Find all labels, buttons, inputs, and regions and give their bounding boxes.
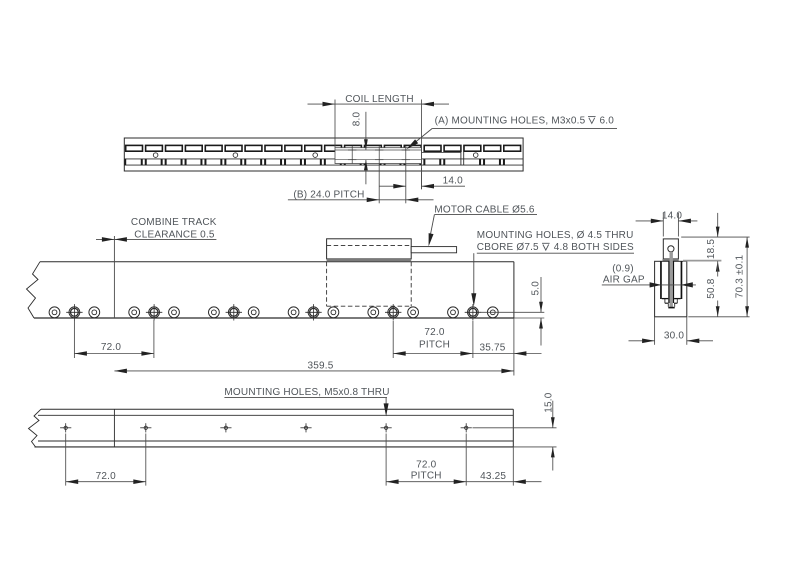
svg-text:14.0: 14.0 xyxy=(662,211,683,222)
svg-text:15.0: 15.0 xyxy=(544,392,555,413)
svg-text:AIR GAP: AIR GAP xyxy=(603,274,645,285)
svg-text:70.3 ±0.1: 70.3 ±0.1 xyxy=(734,255,745,299)
svg-text:CBORE Ø7.5: CBORE Ø7.5 xyxy=(477,242,539,253)
svg-text:COMBINE TRACK: COMBINE TRACK xyxy=(131,217,217,228)
svg-text:35.75: 35.75 xyxy=(479,342,505,353)
svg-text:359.5: 359.5 xyxy=(307,360,333,371)
svg-text:18.5: 18.5 xyxy=(706,239,717,260)
svg-text:CLEARANCE 0.5: CLEARANCE 0.5 xyxy=(134,230,215,241)
svg-text:COIL LENGTH: COIL LENGTH xyxy=(345,94,414,105)
svg-text:43.25: 43.25 xyxy=(480,471,506,482)
svg-text:MOUNTING HOLES, Ø 4.5 THRU: MOUNTING HOLES, Ø 4.5 THRU xyxy=(477,230,634,241)
svg-text:50.8: 50.8 xyxy=(706,278,717,299)
svg-text:30.0: 30.0 xyxy=(664,331,685,342)
svg-text:72.0: 72.0 xyxy=(96,471,117,482)
svg-text:72.0: 72.0 xyxy=(416,459,437,470)
svg-text:MOUNTING HOLES, M5x0.8 THRU: MOUNTING HOLES, M5x0.8 THRU xyxy=(224,387,389,398)
svg-text:72.0: 72.0 xyxy=(424,327,445,338)
svg-text:5.0: 5.0 xyxy=(530,281,541,296)
svg-text:(B) 24.0 PITCH: (B) 24.0 PITCH xyxy=(293,189,364,200)
svg-text:PITCH: PITCH xyxy=(419,340,450,351)
svg-text:MOTOR CABLE Ø5.6: MOTOR CABLE Ø5.6 xyxy=(434,205,535,216)
svg-text:4.8 BOTH SIDES: 4.8 BOTH SIDES xyxy=(554,242,634,253)
svg-text:8.0: 8.0 xyxy=(351,112,362,127)
svg-text:6.0: 6.0 xyxy=(600,116,615,127)
svg-text:72.0: 72.0 xyxy=(101,342,122,353)
svg-text:PITCH: PITCH xyxy=(411,470,442,481)
svg-text:14.0: 14.0 xyxy=(443,176,464,187)
svg-text:(A) MOUNTING HOLES, M3x0.5: (A) MOUNTING HOLES, M3x0.5 xyxy=(435,116,586,127)
svg-text:(0.9): (0.9) xyxy=(612,263,634,274)
